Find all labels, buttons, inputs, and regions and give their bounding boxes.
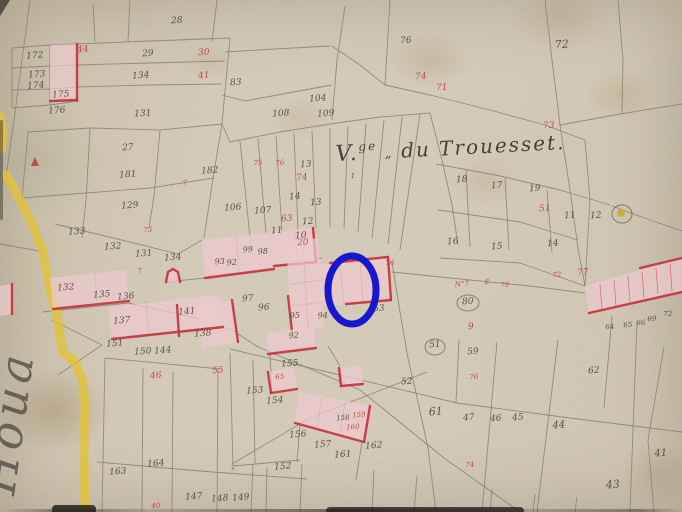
parcel-number: 92 <box>288 331 299 341</box>
parcel-number: 147 <box>185 491 203 502</box>
parcel-number: 163 <box>109 466 127 477</box>
parcel-number: 74 <box>465 461 474 470</box>
parcel-boundary-line <box>217 370 218 512</box>
parcel-number: 156 <box>289 429 307 440</box>
parcel-number: 12 <box>302 217 314 228</box>
parcel-number: 74 <box>415 72 427 83</box>
parcel-boundary-line <box>149 131 160 228</box>
parcel-number: 15 <box>491 242 503 253</box>
parcel-boundary-line <box>251 464 253 512</box>
parcel-number: 132 <box>57 282 75 293</box>
parcel-boundary-line <box>328 346 340 366</box>
parcel-number: 64 <box>605 323 614 332</box>
parcel-number: N°7 <box>454 279 470 288</box>
parcel-number: 83 <box>230 78 242 89</box>
parcel-boundary-line <box>240 141 250 237</box>
parcel-number: 92 <box>226 258 237 268</box>
parcel-boundary-line <box>456 340 459 402</box>
parcel-boundary-line <box>142 368 143 512</box>
parcel-number: 153 <box>246 385 264 396</box>
parcel-boundary-line <box>12 101 77 108</box>
parcel-number: 30 <box>198 48 210 59</box>
parcel-number: 44 <box>76 45 89 56</box>
parcel-number: 7 <box>137 267 143 275</box>
parcel-number: 29 <box>141 49 154 60</box>
parcel-boundary-line <box>256 346 520 512</box>
parcel-number: 174 <box>27 80 45 91</box>
parcel-number: 141 <box>178 306 196 317</box>
parcel-boundary-line <box>172 372 173 512</box>
parcel-number: 136 <box>117 291 135 302</box>
parcel-boundary-line <box>102 358 105 512</box>
parcel-number: 19 <box>529 184 541 195</box>
parcel-number: 41 <box>653 448 667 460</box>
parcel-number: 11 <box>271 226 283 237</box>
parcel-number: 14 <box>547 239 559 250</box>
parcel-boundary-line <box>312 131 316 228</box>
parcel-number: 14 <box>289 192 301 203</box>
parcel-boundary-line <box>388 117 402 244</box>
parcel-number: 94 <box>317 311 328 321</box>
parcel-number: 28 <box>170 16 183 27</box>
parcel-number: 72 <box>552 271 562 280</box>
parcel-number: 173 <box>28 69 46 80</box>
parcel-number: 97 <box>242 294 254 305</box>
parcel-number: 99 <box>242 245 253 255</box>
parcel-number: 13 <box>310 198 322 209</box>
parcel-number: 133 <box>68 226 86 237</box>
parcel-boundary-line <box>300 464 302 512</box>
parcel-number: 46 <box>489 414 502 425</box>
parcel-number: 150 <box>134 346 152 357</box>
parcel-number: 12 <box>590 211 602 222</box>
parcel-number: 7 <box>182 179 188 187</box>
parcel-boundary-line <box>12 61 225 68</box>
parcel-boundary-line <box>482 342 497 512</box>
parcel-boundary-line <box>12 38 230 48</box>
parcel-number: 41 <box>197 71 210 82</box>
parcel-number: 95 <box>289 311 300 321</box>
parcel-number: 172 <box>26 50 44 61</box>
parcel-number: 151 <box>106 338 124 349</box>
parcel-number: 160 <box>346 423 360 432</box>
parcel-number: 109 <box>317 108 335 119</box>
parcel-number: 98 <box>257 247 268 257</box>
parcel-number: 75 <box>253 159 263 168</box>
building-footprint <box>585 258 682 313</box>
parcel-number: 176 <box>48 105 66 116</box>
parcel-boundary-line <box>385 0 390 85</box>
parcel-boundary-line <box>22 132 28 198</box>
parcel-number: 76 <box>469 373 479 382</box>
parcel-boundary-line <box>505 178 509 250</box>
parcel-number: 63 <box>281 214 293 225</box>
parcel-number: 155 <box>281 358 299 369</box>
parcel-boundary-line <box>222 124 230 142</box>
parcel-number: 46 <box>149 371 162 382</box>
parcel-number: 61 <box>428 405 443 419</box>
parcel-number: 161 <box>334 449 352 460</box>
parcel-number: 96 <box>258 303 270 314</box>
cadastral-map-svg: 1724429302813441831731741751761312710410… <box>0 0 682 512</box>
parcel-number: 27 <box>121 143 134 154</box>
parcel-boundary-line <box>630 322 637 512</box>
parcel-number: 106 <box>224 202 242 213</box>
parcel-number: 80 <box>462 297 474 308</box>
parcel-boundary-line <box>332 46 385 85</box>
parcel-number: 79 <box>500 281 510 290</box>
parcel-number: 74 <box>296 173 308 184</box>
parcel-boundary-line <box>225 46 330 52</box>
parcel-boundary-line <box>392 262 436 512</box>
parcel-number: 129 <box>121 200 139 211</box>
parcel-boundary-line <box>28 124 222 132</box>
parcel-number: 72 <box>663 310 673 319</box>
parcel-number: 131 <box>134 108 152 119</box>
parcel-number: 175 <box>52 89 70 100</box>
parcel-number: 51 <box>429 340 441 351</box>
parcel-number: 45 <box>511 413 524 424</box>
parcel-boundary-line <box>400 114 420 250</box>
parcel-boundary-line <box>212 0 217 42</box>
parcel-number: 134 <box>164 252 182 263</box>
parcel-boundary-line <box>93 4 95 42</box>
parcel-number: 131 <box>135 248 153 259</box>
parcel-number: 62 <box>588 366 600 377</box>
parcel-number: 59 <box>467 347 479 358</box>
parcel-boundary-line <box>372 470 374 512</box>
sheet-edge-shadow-2 <box>326 507 524 512</box>
parcel-boundary-line <box>128 0 130 42</box>
margin-script: Houa <box>0 347 45 499</box>
parcel-boundary-line <box>618 0 623 113</box>
parcel-number: 144 <box>154 345 172 356</box>
parcel-number: 69 <box>647 315 657 324</box>
parcel-number: 182 <box>201 165 219 176</box>
parcel-number: 107 <box>254 205 272 216</box>
parcel-number: 65 <box>275 373 285 382</box>
parcel-boundary-line <box>332 6 345 120</box>
parcel-number: 20 <box>296 238 309 249</box>
parcel-boundary-line <box>105 358 220 369</box>
parcel-number: 134 <box>132 70 150 81</box>
parcel-number: 76 <box>275 159 285 168</box>
parcel-number: 159 <box>352 411 366 420</box>
parcel-boundary-line <box>372 120 384 238</box>
parcel-number: 132 <box>104 241 122 252</box>
parcel-number: 52 <box>401 377 413 388</box>
parcel-boundary-line <box>560 104 682 125</box>
parcel-boundary-line <box>258 138 266 234</box>
parcel-number: 108 <box>272 108 290 119</box>
parcel-number: 51 <box>539 204 551 215</box>
parcel-boundary-line <box>222 38 230 124</box>
parcel-number: 72 <box>554 38 569 52</box>
parcel-number: 17 <box>491 181 503 192</box>
building-footprint <box>339 366 363 386</box>
parcel-number: 71 <box>436 83 448 94</box>
parcel-number: 11 <box>564 211 576 222</box>
parcel-number: 148 <box>211 493 229 504</box>
parcel-number: 158 <box>336 414 350 423</box>
building-footprint <box>0 284 12 316</box>
parcel-number: 152 <box>274 461 292 472</box>
parcel-number: 138 <box>194 328 212 339</box>
parcel-number: 157 <box>314 439 332 450</box>
sheet-edge-shadow-1 <box>52 505 96 512</box>
parcel-number: 66 <box>636 319 646 328</box>
parcel-number: 8 <box>484 278 490 286</box>
parcel-boundary-line <box>82 129 90 238</box>
parcel-number: 9 <box>468 322 475 332</box>
parcel-number: 47 <box>462 413 475 424</box>
parcel-number: 44 <box>551 420 565 432</box>
parcel-number: 137 <box>113 315 131 326</box>
parcel-number: 18 <box>456 175 468 186</box>
parcel-number: 154 <box>266 395 284 406</box>
cadastral-map: 1724429302813441831731741751761312710410… <box>0 0 682 512</box>
parcel-number: 75 <box>143 226 153 235</box>
parcel-number: 55 <box>212 366 224 377</box>
sheet-edge-left <box>0 120 3 220</box>
parcel-number: 65 <box>623 321 633 330</box>
map-title: V.ge„du Trouesset. <box>335 129 566 167</box>
parcel-boundary-line <box>204 124 222 238</box>
parcel-number: 13 <box>300 160 312 171</box>
parcel-number: 164 <box>147 458 165 469</box>
parcel-number: 1 <box>350 172 355 180</box>
well-marker <box>617 209 625 217</box>
parcel-number: 93 <box>214 257 225 267</box>
parcel-number: 76 <box>400 36 412 47</box>
parcel-number: 181 <box>119 169 137 180</box>
parcel-number: 135 <box>93 289 111 300</box>
red-survey-mark <box>31 157 39 166</box>
parcel-boundary-line <box>230 353 233 466</box>
parcel-number: 162 <box>365 440 383 451</box>
parcel-number: 104 <box>309 93 327 104</box>
parcel-number: 76 <box>385 259 395 268</box>
parcel-boundary-line <box>356 442 362 480</box>
parcel-number: 16 <box>447 237 459 248</box>
parcel-boundary-line <box>266 467 267 512</box>
parcel-number: 77 <box>577 268 589 279</box>
parcel-number: 43 <box>604 478 620 492</box>
parcel-boundary-line <box>253 360 255 464</box>
parcel-number: 149 <box>232 492 250 503</box>
parcel-boundary-line <box>430 113 458 245</box>
